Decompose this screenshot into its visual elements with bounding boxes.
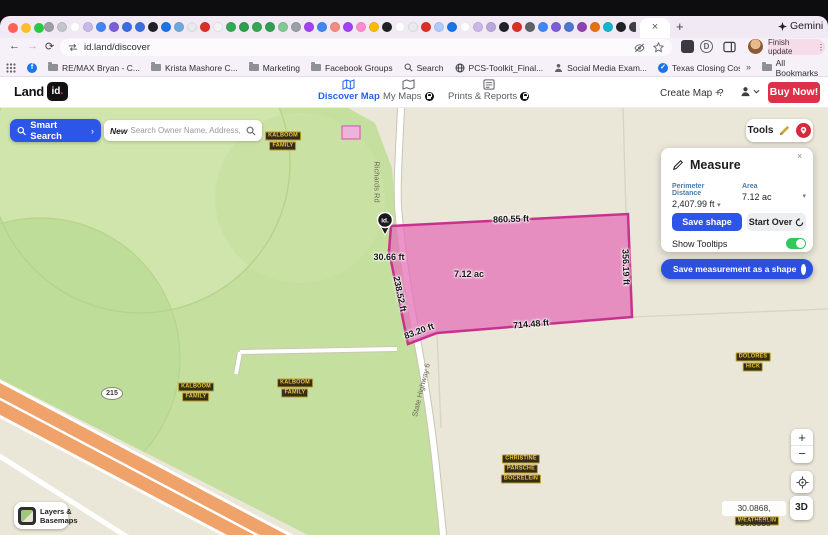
start-over-label: Start Over: [749, 217, 793, 227]
browser-tab[interactable]: [421, 22, 431, 32]
new-tab-button[interactable]: +: [676, 19, 684, 34]
finish-update-label: Finish update: [768, 38, 815, 56]
window-zoom-button[interactable]: [34, 23, 44, 33]
folder-icon: [151, 64, 161, 71]
browser-tab[interactable]: [343, 22, 353, 32]
chevron-down-icon[interactable]: ▾: [717, 202, 721, 209]
browser-tab[interactable]: [460, 22, 470, 32]
crosshair-icon: [796, 476, 809, 489]
perimeter-dropdown[interactable]: Perimeter Distance 2,407.99 ft ▾: [672, 183, 734, 209]
bookmark-label: Texas Closing Cos...: [672, 63, 740, 73]
browser-tab[interactable]: [161, 22, 171, 32]
search-icon: [17, 126, 26, 136]
show-tooltips-row: Show Tooltips: [672, 238, 806, 249]
globe-icon: [455, 63, 465, 73]
browser-tab[interactable]: [213, 22, 223, 32]
logo-id-mark: id.: [47, 82, 68, 101]
window-minimize-button[interactable]: [21, 23, 31, 33]
discover-map-icon: [342, 79, 355, 90]
svg-text:id.: id.: [381, 218, 389, 225]
layers-label-line: Layers &: [40, 507, 78, 516]
basemap-thumbnail-icon: [18, 507, 36, 525]
browser-tab[interactable]: [447, 22, 457, 32]
highway-shield: 215: [101, 387, 123, 400]
reload-button[interactable]: ⟳: [45, 40, 54, 53]
browser-tab[interactable]: [629, 22, 636, 32]
bookmarks-items: fRE/MAX Bryan - C...Krista Mashore C...M…: [6, 58, 740, 77]
browser-tab[interactable]: [135, 22, 145, 32]
browser-tab[interactable]: [174, 22, 184, 32]
browser-window: × + Gemini ← → ⟳ id.land/discover D Fini…: [0, 0, 828, 535]
smart-search-button[interactable]: Smart Search ›: [10, 119, 101, 142]
layers-basemaps-button[interactable]: Layers &Basemaps: [14, 502, 68, 529]
landid-logo[interactable]: Land id.: [14, 82, 68, 101]
search-input[interactable]: New Search Owner Name, Address, Parcel I…: [104, 120, 262, 141]
side-panel-icon[interactable]: [723, 41, 736, 53]
extension-icon[interactable]: [681, 40, 694, 53]
bookmark-label: Search: [417, 63, 444, 73]
extension-d-icon[interactable]: D: [700, 40, 713, 53]
browser-tab[interactable]: [200, 22, 210, 32]
undo-icon: [795, 218, 804, 227]
bookmark-item[interactable]: Marketing: [249, 63, 300, 73]
search-placeholder: Search Owner Name, Address, Parcel Id: [130, 126, 243, 135]
folder-icon: [762, 64, 772, 71]
tools-button[interactable]: Tools: [746, 119, 813, 142]
browser-tab[interactable]: [434, 22, 444, 32]
measured-parcel-polygon[interactable]: [389, 214, 632, 344]
tab-discover-map[interactable]: Discover Map: [318, 79, 380, 102]
browser-tab[interactable]: [590, 22, 600, 32]
bookmark-label: Facebook Groups: [325, 63, 393, 73]
window-close-button[interactable]: [8, 23, 18, 33]
lock-icon: [425, 92, 434, 101]
zoom-control: + −: [791, 429, 813, 463]
browser-tab[interactable]: [395, 22, 405, 32]
browser-tab[interactable]: [499, 22, 509, 32]
search-icon: [404, 63, 413, 72]
pencil-icon: [672, 159, 684, 171]
small-highlighted-parcel[interactable]: [342, 126, 360, 139]
lock-icon: [520, 92, 529, 101]
bookmark-item[interactable]: f: [27, 63, 37, 73]
browser-tab[interactable]: [187, 22, 197, 32]
browser-tab[interactable]: [486, 22, 496, 32]
bookmark-item[interactable]: Search: [404, 63, 444, 73]
browser-tab[interactable]: [317, 22, 327, 32]
measure-tool-active-icon: [796, 123, 811, 138]
browser-tab[interactable]: [382, 22, 392, 32]
gemini-label: Gemini: [790, 20, 823, 32]
zoom-in-button[interactable]: +: [791, 429, 813, 446]
browser-tab[interactable]: [226, 22, 236, 32]
bookmark-item[interactable]: Social Media Exam...: [554, 63, 647, 73]
help-button[interactable]: ?: [718, 88, 724, 99]
layers-basemaps-label: Layers &Basemaps: [40, 507, 78, 525]
browser-tab[interactable]: [291, 22, 301, 32]
my-maps-icon: [402, 79, 415, 90]
eye-blocked-icon[interactable]: [634, 43, 645, 53]
chevron-right-icon: ›: [91, 126, 94, 136]
tab-close-icon[interactable]: ×: [652, 21, 658, 33]
tab-label: My Maps: [383, 91, 422, 102]
tab-my-maps[interactable]: My Maps: [383, 79, 434, 102]
browser-tab[interactable]: [616, 22, 626, 32]
locate-button[interactable]: [791, 471, 813, 493]
bookmarks-bar: fRE/MAX Bryan - C...Krista Mashore C...M…: [0, 58, 828, 77]
toast-label: Save measurement as a shape: [673, 264, 796, 274]
browser-tab[interactable]: [57, 22, 67, 32]
all-bookmarks-button[interactable]: All Bookmarks: [762, 58, 828, 77]
browser-tab[interactable]: [356, 22, 366, 32]
save-measurement-toast[interactable]: Save measurement as a shape ×: [661, 259, 813, 279]
cursor-coordinates: 30.0868, -96.0038: [722, 501, 786, 516]
bookmark-star-icon[interactable]: [653, 42, 664, 53]
address-bar: ← → ⟳ id.land/discover D Finish update ⋮: [0, 38, 828, 58]
zoom-out-button[interactable]: −: [791, 446, 813, 462]
search-new-prefix: New: [110, 126, 127, 136]
bookmark-label: Social Media Exam...: [567, 63, 647, 73]
buy-now-button[interactable]: Buy Now!: [768, 82, 820, 103]
apps-grid-icon: [6, 63, 16, 73]
tab-prints-reports[interactable]: Prints & Reports: [448, 79, 529, 102]
save-shape-button[interactable]: Save shape: [672, 213, 742, 231]
folder-icon: [311, 64, 321, 71]
bookmark-label: PCS-Toolkit_Final...: [469, 63, 544, 73]
browser-tab[interactable]: [96, 22, 106, 32]
prints-reports-icon: [483, 79, 495, 90]
browser-tab[interactable]: [564, 22, 574, 32]
browser-tab[interactable]: [148, 22, 158, 32]
area-value: 7.12 ac ▾: [742, 192, 806, 202]
browser-tab[interactable]: [473, 22, 483, 32]
show-tooltips-toggle[interactable]: [786, 238, 806, 249]
browser-tab[interactable]: [369, 22, 379, 32]
facebook-icon: f: [27, 63, 37, 73]
area-dropdown[interactable]: Area 7.12 ac ▾: [742, 183, 806, 202]
omnibox[interactable]: id.land/discover: [60, 39, 672, 56]
browser-tab[interactable]: [330, 22, 340, 32]
profile-avatar[interactable]: [748, 39, 763, 54]
browser-tab[interactable]: [265, 22, 275, 32]
browser-tab[interactable]: [304, 22, 314, 32]
gemini-button[interactable]: Gemini: [778, 20, 823, 32]
search-icon: [246, 126, 256, 136]
sparkle-icon: [778, 22, 787, 31]
bookmarks-overflow-button[interactable]: »: [746, 62, 751, 72]
area-label: Area: [742, 183, 806, 190]
url-text: id.land/discover: [84, 42, 150, 53]
forward-button[interactable]: →: [27, 40, 38, 52]
browser-tab[interactable]: [278, 22, 288, 32]
bookmark-label: Krista Mashore C...: [165, 63, 238, 73]
bookmark-item[interactable]: PCS-Toolkit_Final...: [455, 63, 544, 73]
browser-tab[interactable]: [252, 22, 262, 32]
tab-strip: × + Gemini: [0, 16, 828, 38]
person-icon: [740, 86, 751, 97]
bookmark-item[interactable]: Krista Mashore C...: [151, 63, 238, 73]
start-over-button[interactable]: Start Over: [747, 213, 806, 231]
toast-close-icon[interactable]: ×: [801, 264, 806, 275]
logo-land-text: Land: [14, 84, 44, 99]
finish-update-button[interactable]: Finish update ⋮: [768, 39, 825, 55]
browser-tab[interactable]: [538, 22, 548, 32]
map-pin-icon: [799, 126, 808, 135]
browser-tab[interactable]: [408, 22, 418, 32]
chevron-down-icon: [753, 89, 760, 94]
perimeter-value: 2,407.99 ft ▾: [672, 199, 734, 209]
bookmark-label: RE/MAX Bryan - C...: [62, 63, 140, 73]
browser-tab[interactable]: [239, 22, 249, 32]
browser-tab[interactable]: [70, 22, 80, 32]
site-info-icon: [68, 43, 78, 52]
bookmark-item[interactable]: Facebook Groups: [311, 63, 393, 73]
person-icon: [554, 63, 563, 73]
check-icon: ✓: [658, 63, 668, 73]
show-tooltips-label: Show Tooltips: [672, 239, 727, 249]
back-button[interactable]: ←: [9, 40, 20, 52]
browser-tabs: [44, 22, 636, 33]
close-icon[interactable]: ×: [797, 151, 802, 161]
measure-panel-title: Measure: [672, 158, 741, 172]
all-bookmarks-label: All Bookmarks: [776, 58, 828, 78]
account-menu-button[interactable]: [740, 86, 760, 97]
smart-search-label: Smart Search: [30, 120, 87, 142]
pencil-icon: [778, 124, 791, 137]
browser-tab[interactable]: [577, 22, 587, 32]
bookmark-item[interactable]: RE/MAX Bryan - C...: [48, 63, 140, 73]
browser-tab[interactable]: [551, 22, 561, 32]
bookmark-label: Marketing: [263, 63, 300, 73]
browser-tab[interactable]: [122, 22, 132, 32]
tools-label: Tools: [748, 125, 774, 136]
bookmark-item[interactable]: [6, 63, 16, 73]
folder-icon: [249, 64, 259, 71]
active-tab[interactable]: ×: [640, 18, 670, 38]
folder-icon: [48, 64, 58, 71]
browser-tab[interactable]: [512, 22, 522, 32]
tab-label: Discover Map: [318, 91, 380, 102]
bookmark-item[interactable]: ✓Texas Closing Cos...: [658, 63, 740, 73]
app-header: Land id. Discover Map My Maps Prints & R…: [0, 77, 828, 108]
tab-label: Prints & Reports: [448, 91, 517, 102]
browser-menu-icon[interactable]: ⋮: [817, 43, 825, 52]
browser-tab[interactable]: [83, 22, 93, 32]
create-map-button[interactable]: Create Map +: [660, 88, 721, 99]
browser-tab[interactable]: [44, 22, 54, 32]
layers-label-line: Basemaps: [40, 516, 78, 525]
green-fields: [0, 108, 442, 535]
browser-tab[interactable]: [603, 22, 613, 32]
3d-view-button[interactable]: 3D: [790, 496, 813, 520]
browser-tab[interactable]: [109, 22, 119, 32]
browser-tab[interactable]: [525, 22, 535, 32]
chevron-down-icon[interactable]: ▾: [802, 192, 806, 200]
perimeter-label: Perimeter Distance: [672, 183, 734, 197]
